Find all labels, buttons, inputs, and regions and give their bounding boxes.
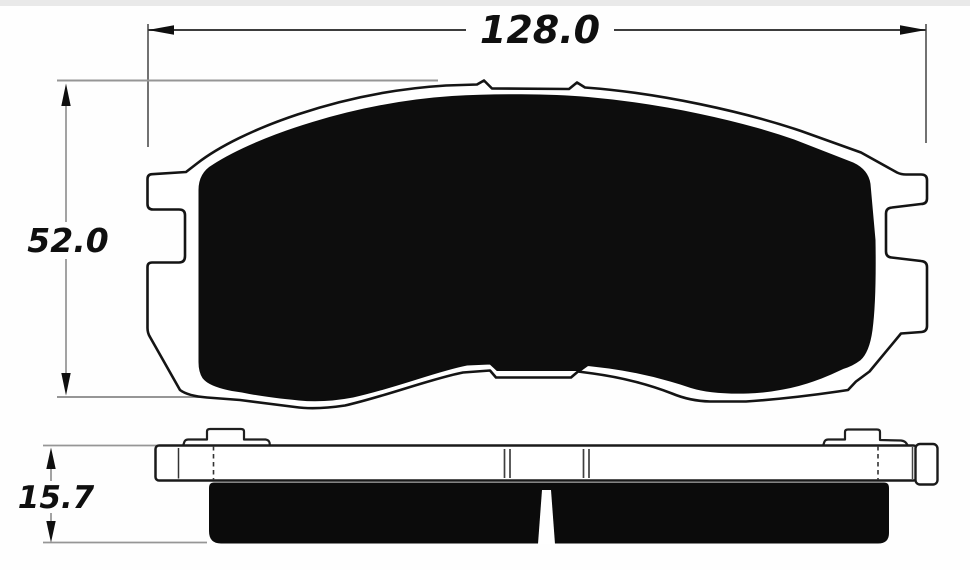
technical-drawing-canvas: 128.0 52.0 15.7 bbox=[0, 0, 970, 570]
arrow-down-icon bbox=[46, 521, 55, 543]
dimension-thickness-label: 15.7 bbox=[18, 480, 95, 516]
side-backing-plate bbox=[156, 446, 918, 481]
arrow-down-icon bbox=[61, 373, 70, 396]
dimension-width-label: 128.0 bbox=[480, 8, 600, 52]
dimension-height-label: 52.0 bbox=[27, 221, 108, 260]
side-left-clip bbox=[183, 429, 270, 446]
arrow-up-icon bbox=[61, 84, 70, 107]
pad-side-view bbox=[156, 429, 938, 544]
side-plate-end-cap bbox=[916, 444, 938, 485]
side-right-clip bbox=[823, 430, 908, 447]
drawing-page: 128.0 52.0 15.7 bbox=[0, 0, 970, 570]
arrow-right-icon bbox=[900, 25, 926, 34]
arrow-left-icon bbox=[148, 25, 174, 34]
pad-front-view bbox=[148, 81, 928, 409]
arrow-up-icon bbox=[46, 448, 55, 470]
front-friction-material bbox=[199, 95, 875, 401]
